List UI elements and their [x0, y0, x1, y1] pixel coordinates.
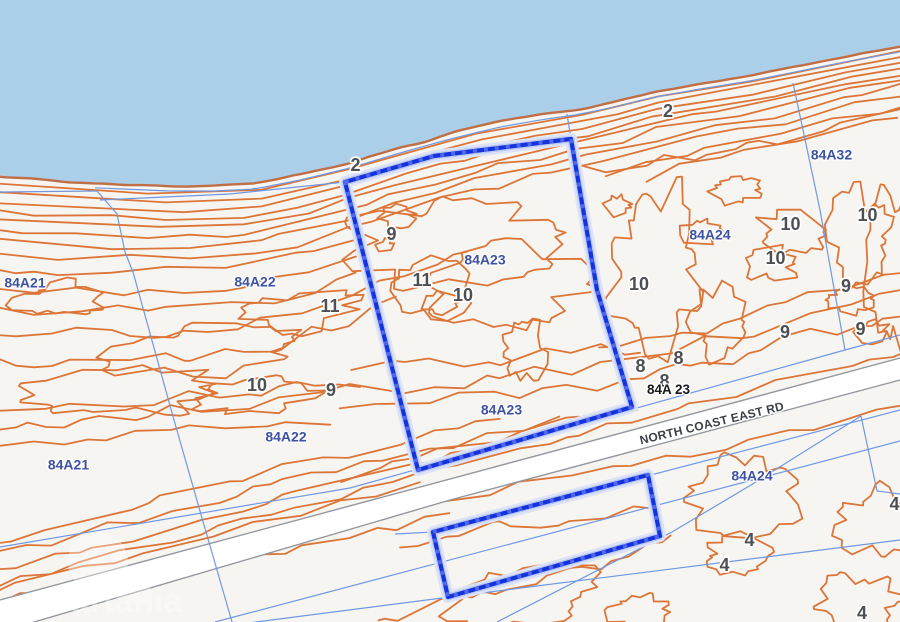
svg-text:2: 2: [663, 101, 673, 121]
svg-text:9: 9: [841, 276, 851, 296]
svg-text:84A 23: 84A 23: [647, 382, 691, 397]
svg-text:8: 8: [673, 348, 683, 368]
svg-text:11: 11: [412, 270, 431, 290]
svg-text:84A24: 84A24: [689, 227, 730, 243]
svg-text:4: 4: [744, 530, 754, 550]
svg-text:9: 9: [386, 224, 396, 244]
svg-text:9: 9: [326, 380, 336, 400]
svg-text:10: 10: [453, 285, 473, 305]
svg-text:2: 2: [350, 155, 360, 175]
svg-text:84A23: 84A23: [464, 252, 505, 268]
svg-text:10: 10: [629, 274, 649, 294]
svg-text:10: 10: [780, 214, 800, 234]
svg-text:9: 9: [855, 319, 865, 339]
svg-text:11: 11: [320, 296, 339, 316]
svg-text:10: 10: [857, 205, 877, 225]
svg-text:84A22: 84A22: [234, 274, 275, 290]
svg-text:84A24: 84A24: [731, 468, 772, 484]
svg-text:4: 4: [857, 603, 867, 622]
svg-text:4: 4: [889, 494, 899, 514]
svg-text:84A22: 84A22: [265, 429, 306, 445]
svg-text:84A32: 84A32: [811, 147, 852, 163]
svg-text:4: 4: [719, 555, 729, 575]
svg-text:8: 8: [635, 356, 645, 376]
svg-text:cartania: cartania: [52, 582, 183, 620]
svg-text:10: 10: [765, 248, 785, 268]
svg-text:84A21: 84A21: [4, 275, 45, 291]
svg-text:84A23: 84A23: [481, 402, 522, 418]
svg-text:84A21: 84A21: [48, 457, 89, 473]
svg-text:10: 10: [247, 375, 267, 395]
svg-text:9: 9: [780, 322, 790, 342]
